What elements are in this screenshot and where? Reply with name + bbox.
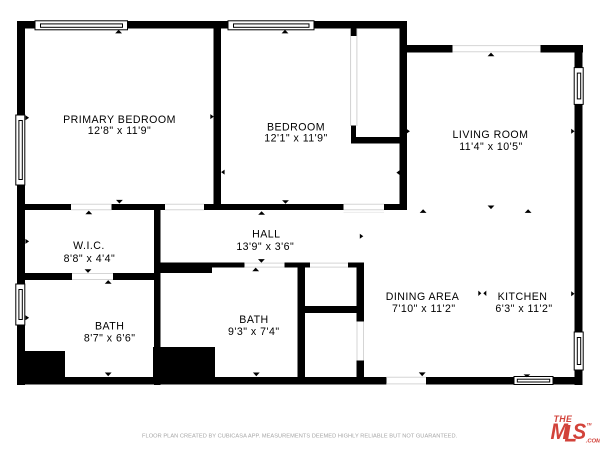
svg-text:12'8" x 11'9": 12'8" x 11'9" <box>88 125 152 137</box>
svg-text:BATH: BATH <box>239 314 268 326</box>
svg-text:W.I.C.: W.I.C. <box>73 240 105 252</box>
svg-text:7'10" x 11'2": 7'10" x 11'2" <box>392 303 456 315</box>
svg-text:11'4" x 10'5": 11'4" x 10'5" <box>459 141 523 153</box>
svg-text:DINING AREA: DINING AREA <box>386 291 460 303</box>
svg-text:LIVING ROOM: LIVING ROOM <box>453 129 529 141</box>
svg-text:TM: TM <box>587 422 592 426</box>
svg-text:9'3" x 7'4": 9'3" x 7'4" <box>228 326 280 338</box>
svg-text:6'3" x 11'2": 6'3" x 11'2" <box>495 303 552 315</box>
svg-text:FLOOR PLAN CREATED BY CUBICASA: FLOOR PLAN CREATED BY CUBICASA APP. MEAS… <box>142 433 458 439</box>
svg-text:HALL: HALL <box>252 228 280 240</box>
svg-text:KITCHEN: KITCHEN <box>498 291 548 303</box>
svg-text:13'9" x 3'6": 13'9" x 3'6" <box>236 241 294 253</box>
svg-text:.COM: .COM <box>586 438 600 444</box>
svg-text:S: S <box>573 419 586 444</box>
svg-text:12'1" x 11'9": 12'1" x 11'9" <box>264 132 328 144</box>
svg-text:8'8" x 4'4": 8'8" x 4'4" <box>64 253 116 265</box>
svg-text:8'7" x 6'6": 8'7" x 6'6" <box>84 332 136 344</box>
svg-text:BATH: BATH <box>95 321 124 333</box>
